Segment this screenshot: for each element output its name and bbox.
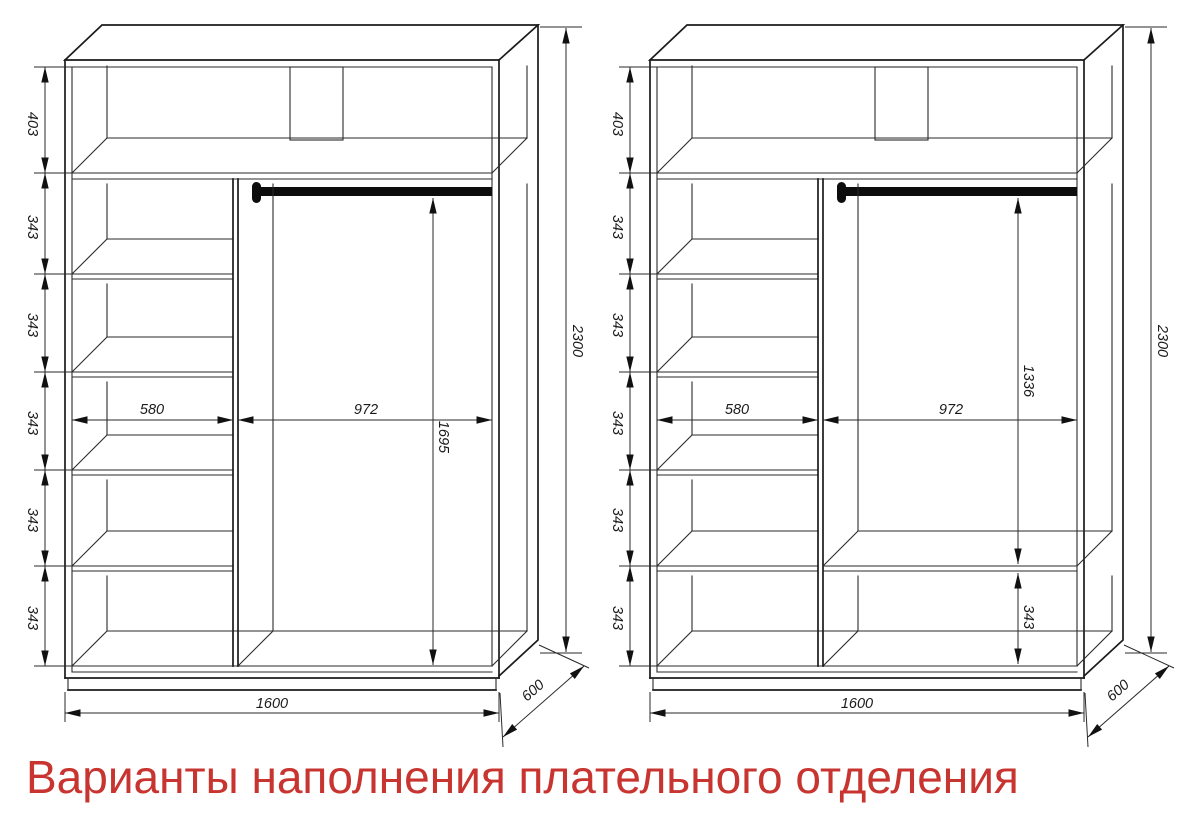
dimension-labels-right: 403 343 343 343 343 343 580 972 1336 343… xyxy=(609,112,1170,712)
dim-label-total-height: 2300 xyxy=(1154,324,1170,357)
wardrobe-filling-diagram: 403 343 343 343 343 343 580 972 1695 230… xyxy=(0,0,1200,824)
dim-label-hanging-height: 1695 xyxy=(435,421,451,454)
dim-label-shelf-gap-2: 343 xyxy=(609,313,625,337)
dim-label-shelf-gap-1: 343 xyxy=(609,215,625,239)
dim-label-total-width: 1600 xyxy=(841,696,873,712)
dim-label-hanging-height: 1336 xyxy=(1020,365,1036,398)
dim-label-shelf-width: 580 xyxy=(725,402,749,418)
dim-label-depth: 600 xyxy=(1104,677,1133,705)
hanging-back-corners xyxy=(858,184,1112,631)
dim-label-hanging-width: 972 xyxy=(939,402,963,418)
dim-label-shelf-gap-4: 343 xyxy=(24,508,40,532)
dim-label-top-section: 403 xyxy=(24,112,40,136)
dim-label-depth: 600 xyxy=(519,677,548,705)
dim-label-shelf-gap-5: 343 xyxy=(609,606,625,630)
wardrobe-structure-left xyxy=(34,25,589,747)
dim-label-below-shelf-gap: 343 xyxy=(1020,605,1036,629)
dim-label-shelf-gap-3: 343 xyxy=(24,411,40,435)
hanging-section-shelf xyxy=(823,531,1112,571)
wardrobe-variant-2: 403 343 343 343 343 343 580 972 1336 343… xyxy=(609,25,1174,747)
dim-label-shelf-gap-1: 343 xyxy=(24,215,40,239)
dim-label-top-section: 403 xyxy=(609,112,625,136)
dim-label-shelf-width: 580 xyxy=(140,402,164,418)
dim-label-total-height: 2300 xyxy=(569,324,585,357)
dim-label-shelf-gap-4: 343 xyxy=(609,508,625,532)
dim-label-shelf-gap-2: 343 xyxy=(24,313,40,337)
wardrobe-structure-right xyxy=(619,25,1174,747)
dim-label-shelf-gap-5: 343 xyxy=(24,606,40,630)
dimension-labels-left: 403 343 343 343 343 343 580 972 1695 230… xyxy=(24,112,585,712)
dim-label-shelf-gap-3: 343 xyxy=(609,411,625,435)
dim-label-total-width: 1600 xyxy=(256,696,288,712)
technical-drawing-canvas: 403 343 343 343 343 343 580 972 1695 230… xyxy=(0,0,1200,824)
diagram-title: Варианты наполнения плательного отделени… xyxy=(26,750,1186,810)
wardrobe-variant-1: 403 343 343 343 343 343 580 972 1695 230… xyxy=(24,25,589,747)
dim-label-hanging-width: 972 xyxy=(354,402,378,418)
